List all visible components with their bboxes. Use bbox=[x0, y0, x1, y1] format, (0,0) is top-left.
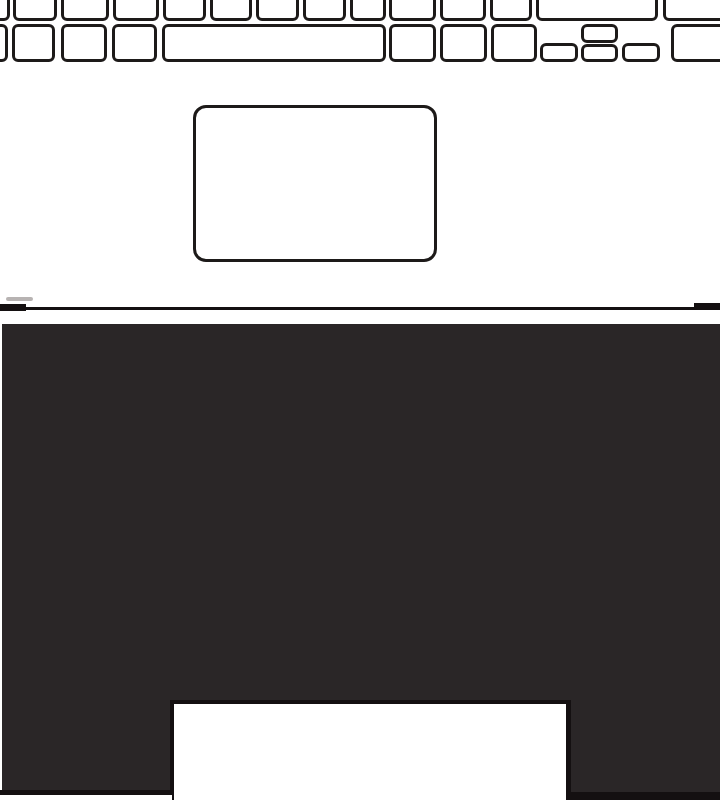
keyboard-key bbox=[490, 0, 532, 21]
keyboard-key bbox=[440, 24, 487, 62]
keyboard-key bbox=[113, 0, 159, 21]
keyboard-key bbox=[440, 0, 486, 21]
spacebar-key bbox=[162, 24, 386, 62]
panel-bottom-right-edge bbox=[571, 792, 720, 800]
laptop-illustration bbox=[0, 0, 720, 800]
notch-cutout bbox=[174, 704, 566, 800]
arrow-left-key bbox=[540, 43, 578, 62]
keyboard-key bbox=[61, 24, 107, 62]
keyboard-key bbox=[663, 0, 720, 21]
keyboard-key bbox=[491, 24, 537, 62]
arrow-up-key bbox=[581, 24, 618, 43]
keyboard-key bbox=[112, 24, 157, 62]
keyboard-key bbox=[389, 24, 436, 62]
keyboard-key bbox=[0, 0, 10, 21]
keyboard-key bbox=[389, 0, 436, 21]
arrow-right-key bbox=[622, 43, 660, 62]
keyboard-key bbox=[61, 0, 109, 21]
keyboard-key bbox=[303, 0, 346, 21]
trackpad bbox=[193, 105, 437, 262]
hinge-line-left-cap bbox=[0, 304, 26, 311]
keyboard-key bbox=[163, 0, 206, 21]
keyboard-key bbox=[12, 24, 55, 62]
keyboard-key bbox=[210, 0, 252, 21]
smudge-mark bbox=[6, 297, 33, 301]
keyboard-key bbox=[256, 0, 299, 21]
panel-bottom-left-gap bbox=[0, 795, 172, 800]
keyboard-key bbox=[13, 0, 57, 21]
arrow-down-key bbox=[581, 44, 618, 62]
hinge-line-right-cap bbox=[694, 303, 720, 310]
hinge-line bbox=[0, 307, 720, 310]
keyboard-key bbox=[0, 24, 8, 62]
keyboard-key bbox=[350, 0, 386, 21]
keyboard-key bbox=[671, 24, 720, 62]
keyboard-key-wide bbox=[536, 0, 658, 21]
